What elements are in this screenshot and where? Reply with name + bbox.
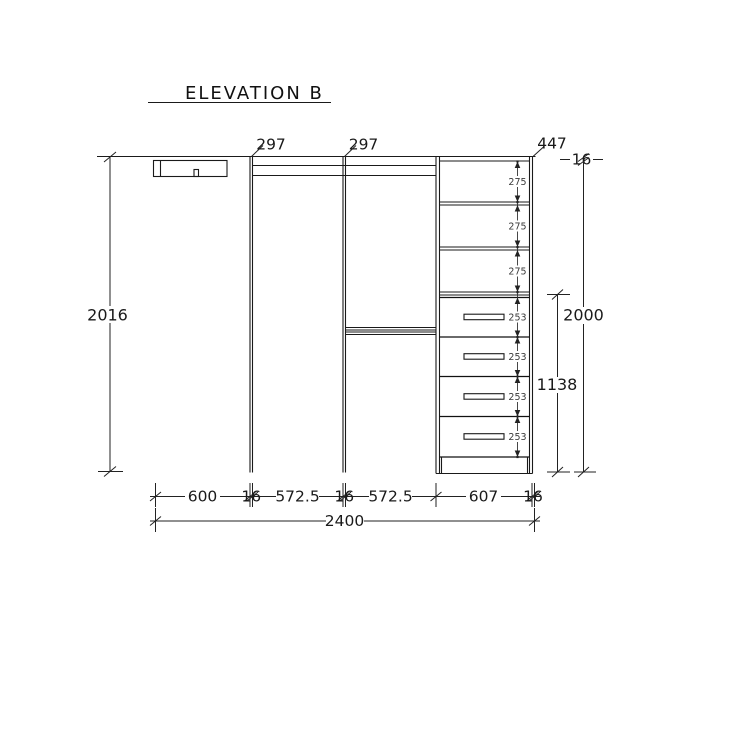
- top-shelf-band: [253, 166, 437, 176]
- dim-label-600: 600: [188, 488, 218, 506]
- drawing-title: ELEVATION B: [185, 83, 324, 104]
- hanging-rail-bracket: [194, 170, 199, 177]
- dim-label-16-c: 16: [523, 488, 543, 506]
- dim-2400: 2400: [150, 508, 540, 532]
- dim-label-shelf-1: 275: [508, 177, 526, 188]
- dim-label-shelf-2: 275: [508, 222, 526, 233]
- drawer-handle-2: [464, 354, 504, 360]
- dim-label-16-top: 16: [572, 151, 592, 169]
- mid-shelf: [346, 328, 437, 335]
- dim-label-drawer-3: 253: [508, 392, 526, 403]
- dim-16-top: 16: [560, 151, 603, 169]
- dim-label-607: 607: [469, 488, 499, 506]
- dim-label-447: 447: [537, 135, 567, 153]
- dim-label-2016: 2016: [87, 306, 128, 325]
- elevation-drawing: ELEVATION B: [0, 0, 750, 750]
- unit-shelf-1: [440, 202, 530, 205]
- dim-label-2400: 2400: [325, 512, 364, 530]
- dim-bottom-chain: 600 16 572.5 16 572.5 607 16: [150, 483, 543, 507]
- dim-label-2000: 2000: [563, 306, 604, 325]
- drawer-handle-3: [464, 394, 504, 400]
- partition-2: [343, 157, 346, 473]
- drawer-handle-4: [464, 434, 504, 440]
- dim-label-16-b: 16: [334, 488, 354, 506]
- dim-label-shelf-3: 275: [508, 267, 526, 278]
- dim-label-297-b: 297: [349, 136, 379, 154]
- dim-label-572-a: 572.5: [275, 488, 319, 506]
- dim-label-16-a: 16: [241, 488, 261, 506]
- unit-base: [436, 457, 533, 474]
- elevation-drawing-page: ELEVATION B: [0, 0, 750, 750]
- dim-label-drawer-4: 253: [508, 432, 526, 443]
- dim-2016: 2016: [87, 152, 128, 477]
- dim-label-572-b: 572.5: [368, 488, 412, 506]
- partition-1: [250, 157, 253, 473]
- dim-label-drawer-2: 253: [508, 352, 526, 363]
- dim-label-drawer-1: 253: [508, 313, 526, 324]
- drawer-handle-1: [464, 314, 504, 320]
- unit-shelf-2: [440, 247, 530, 250]
- dim-label-297-a: 297: [256, 136, 286, 154]
- top-left-panel: [154, 161, 228, 177]
- dim-label-1138: 1138: [537, 375, 578, 394]
- unit-shelf-3: [440, 292, 530, 295]
- dim-top-leaders: 297 297 447: [252, 135, 567, 157]
- dim-2000: 2000: [563, 161, 604, 478]
